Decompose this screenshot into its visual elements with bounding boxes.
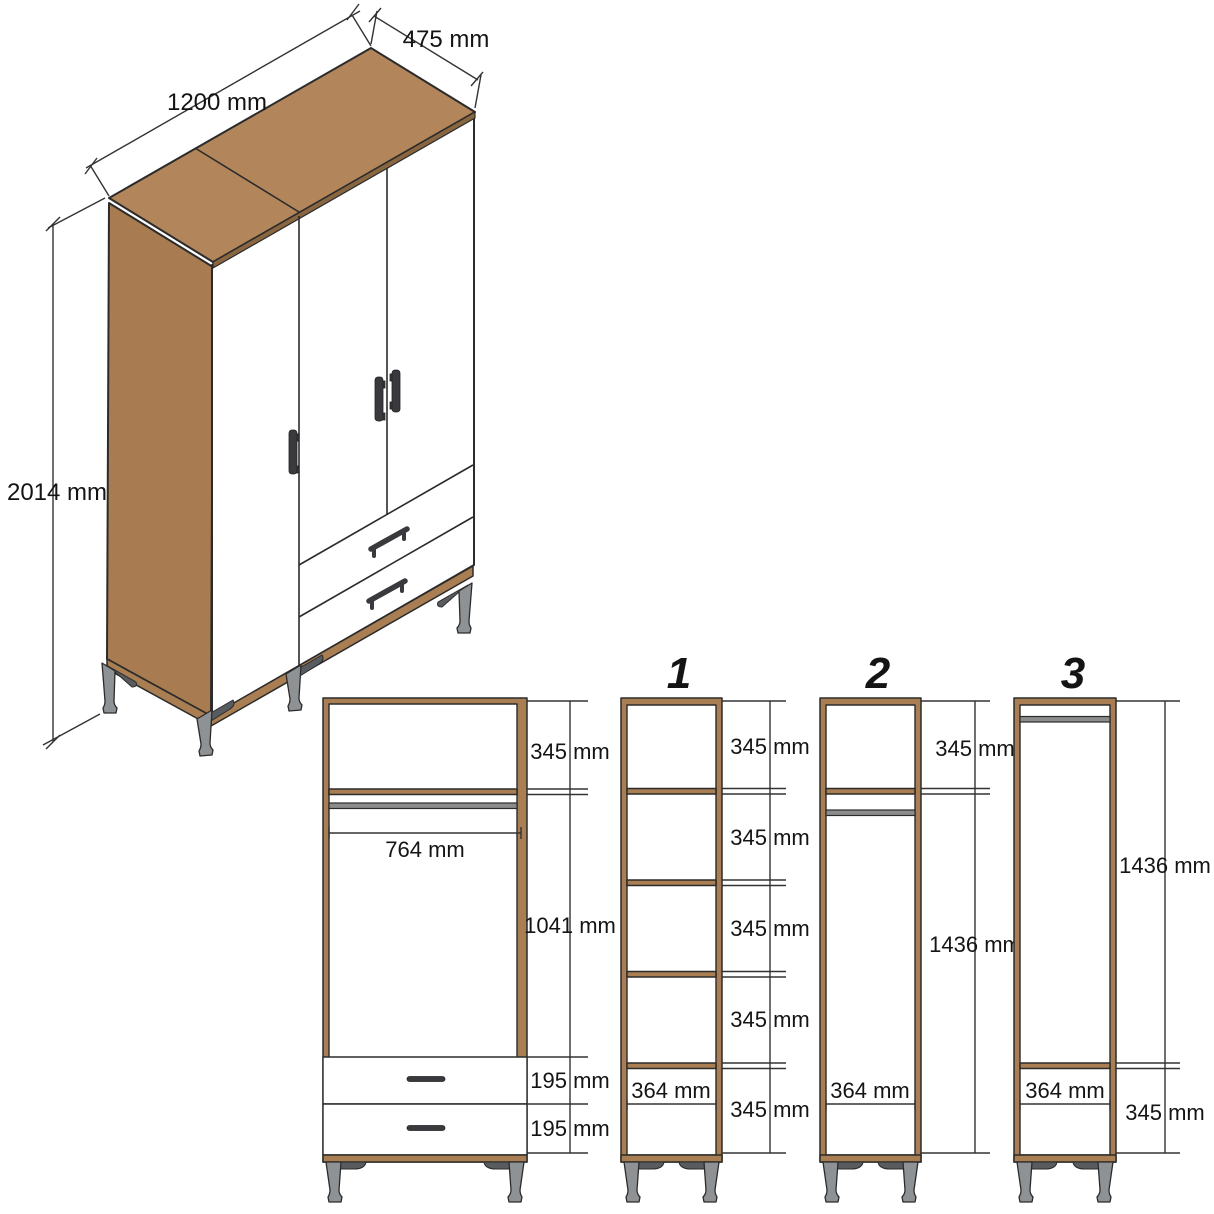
section-3-hanging-rod [1020, 717, 1110, 723]
section-1-compartment-4-label: 345 mm [730, 1007, 809, 1032]
section-1-compartment-3-label: 345 mm [730, 916, 809, 941]
front-view-dimensions: 345 mm 1041 mm 195 mm 195 mm [524, 701, 616, 1153]
section-1-compartment-2-label: 345 mm [730, 825, 809, 850]
width-label: 1200 mm [167, 89, 267, 116]
wardrobe-technical-drawing: 1200 mm 475 mm 2014 mm [0, 0, 1214, 1214]
front-section-view: 764 mm 345 mm 1041 mm 195 mm 195 mm [323, 698, 616, 1202]
inner-width-label: 764 mm [385, 837, 464, 862]
top-compartment-label: 345 mm [530, 739, 609, 764]
section-3-inner-width-label: 364 mm [1025, 1078, 1104, 1103]
section-1-shelf-2 [627, 880, 716, 886]
section-2-bottom-rail [820, 1155, 921, 1162]
section-3-bottom-rail [1014, 1155, 1116, 1162]
section-2-right-leg [878, 1162, 918, 1202]
section-1-bottom-rail [621, 1155, 722, 1162]
section-3-right-leg [1073, 1162, 1113, 1202]
section-1-left-leg [624, 1162, 664, 1202]
upper-drawer-label: 195 mm [530, 1068, 609, 1093]
front-view-left-leg [326, 1162, 366, 1202]
bottom-rail [323, 1155, 527, 1162]
section-3-bottom-compartment-label: 345 mm [1125, 1100, 1204, 1125]
section-2-inner-width-label: 364 mm [830, 1078, 909, 1103]
lower-drawer-handle [407, 1126, 445, 1131]
height-label: 2014 mm [7, 479, 107, 506]
section-view-3: 3 1436 mm 345 mm 364 mm [1014, 649, 1211, 1202]
depth-label: 475 mm [403, 26, 490, 53]
section-2-top-compartment-label: 345 mm [935, 736, 1014, 761]
section-3-left-leg [1017, 1162, 1057, 1202]
section-1-right-leg [679, 1162, 719, 1202]
section-1-number: 1 [667, 649, 691, 698]
section-1-compartment-1-label: 345 mm [730, 734, 809, 759]
lower-drawer-label: 195 mm [530, 1116, 609, 1141]
section-view-2: 2 345 mm 1436 mm 364 mm [820, 649, 1021, 1202]
section-1-shelf-1 [627, 789, 716, 795]
section-3-shelf [1020, 1063, 1110, 1069]
section-1-compartment-5-label: 345 mm [730, 1097, 809, 1122]
section-2-hanging-rod [826, 810, 915, 816]
section-2-shelf [826, 789, 915, 795]
section-3-hanging-space-label: 1436 mm [1119, 853, 1211, 878]
diagram-canvas: 1200 mm 475 mm 2014 mm [0, 0, 1214, 1214]
top-shelf [329, 789, 517, 795]
section-1-inner-width-label: 364 mm [631, 1078, 710, 1103]
isometric-view: 1200 mm 475 mm 2014 mm [7, 4, 489, 756]
wardrobe-side-panel [107, 203, 213, 716]
section-view-1: 1 345 mm 345 mm 345 mm 345 mm 345 mm [621, 649, 810, 1202]
section-1-shelf-3 [627, 972, 716, 978]
section-2-number: 2 [865, 649, 891, 698]
section-1-shelf-4 [627, 1063, 716, 1069]
front-view-right-leg [484, 1162, 524, 1202]
dimension-height: 2014 mm [7, 198, 107, 749]
hanging-area-label: 1041 mm [524, 913, 616, 938]
section-3-number: 3 [1061, 649, 1085, 698]
section-2-hanging-space-label: 1436 mm [929, 932, 1021, 957]
upper-drawer-handle [407, 1077, 445, 1082]
hanging-rod [329, 803, 517, 809]
section-2-left-leg [823, 1162, 863, 1202]
